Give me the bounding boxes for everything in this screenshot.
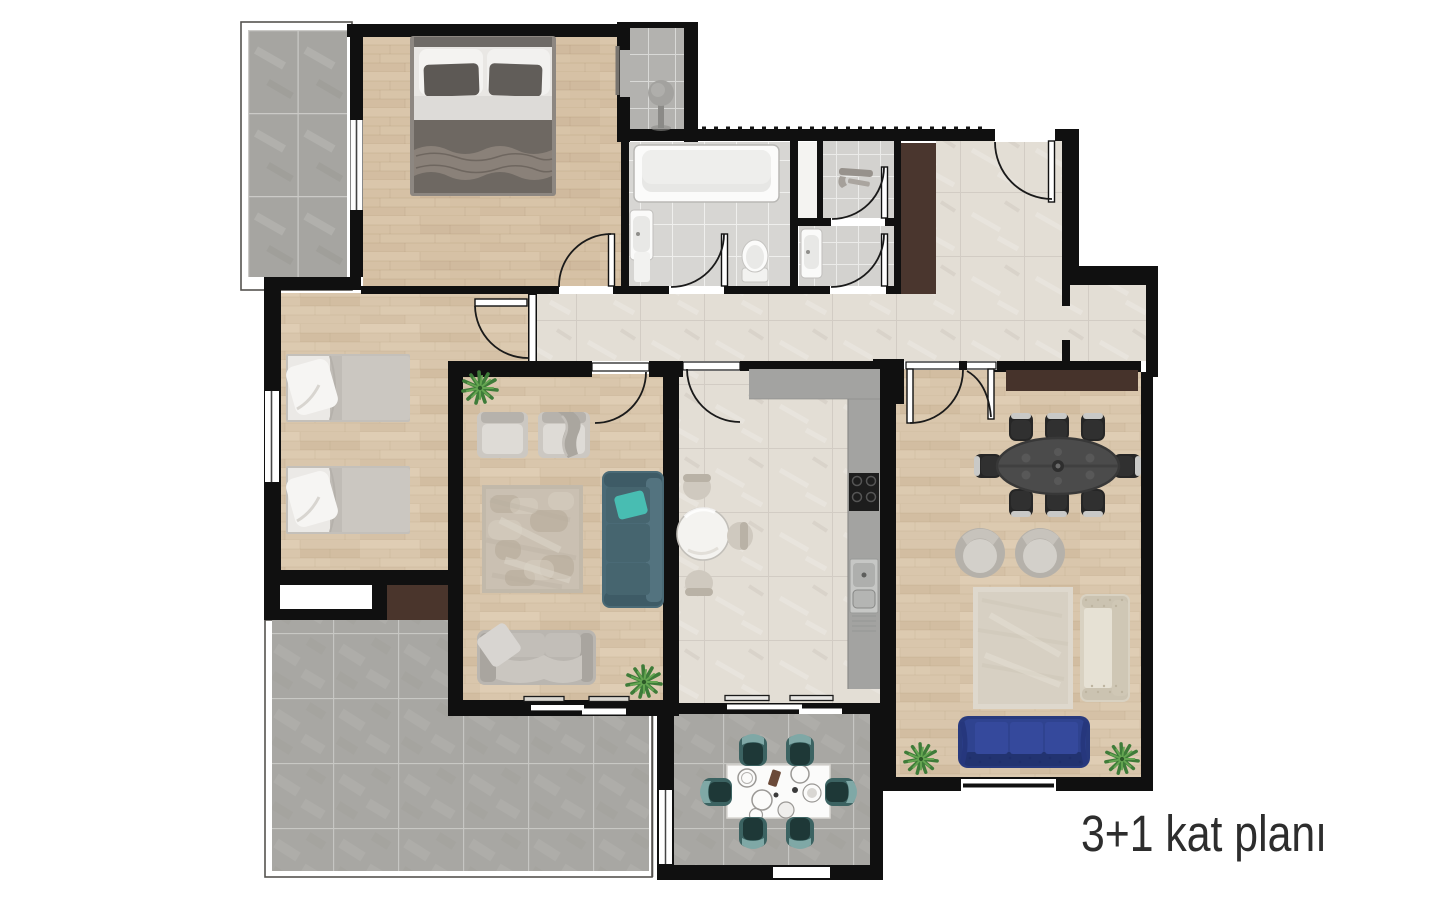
svg-text:3+1 kat planı: 3+1 kat planı <box>1081 805 1327 862</box>
